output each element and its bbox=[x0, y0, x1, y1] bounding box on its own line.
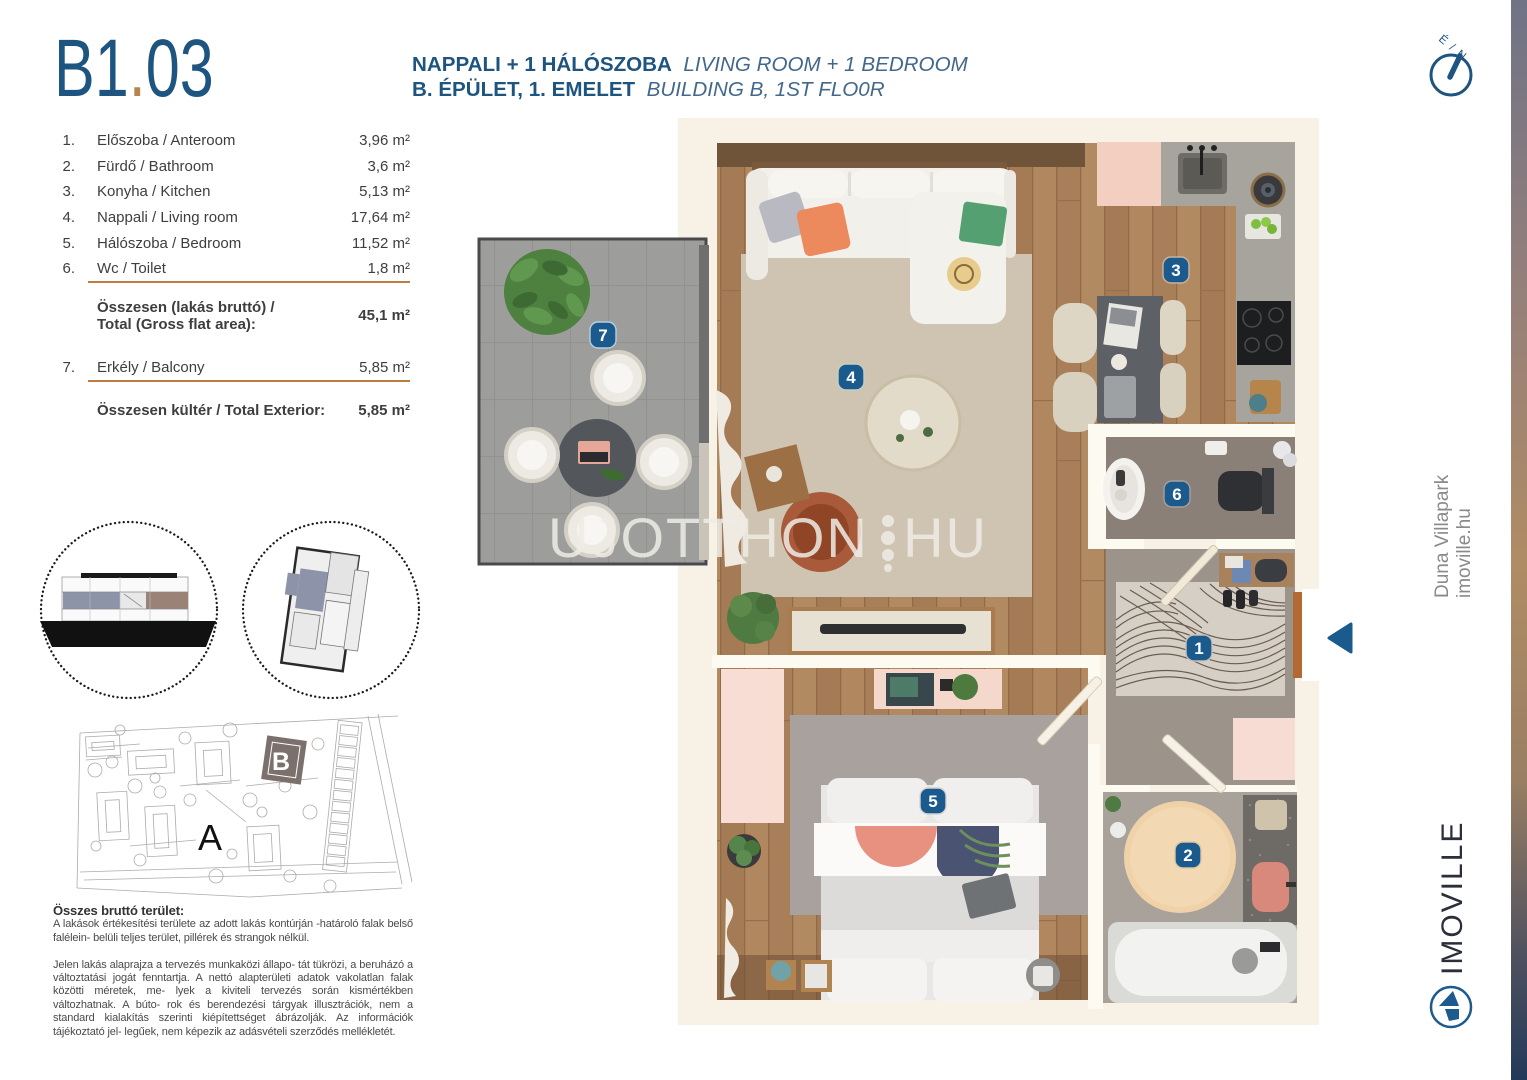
svg-text:B: B bbox=[272, 748, 290, 776]
svg-text:7: 7 bbox=[598, 326, 607, 345]
svg-text:4: 4 bbox=[846, 368, 856, 387]
svg-text:UJOTTHON: UJOTTHON bbox=[548, 506, 869, 569]
svg-text:Duna Villapark: Duna Villapark bbox=[1432, 474, 1453, 598]
svg-text:A: A bbox=[198, 817, 222, 858]
svg-text:HU: HU bbox=[903, 506, 988, 569]
svg-text:imoville.hu: imoville.hu bbox=[1454, 508, 1475, 598]
svg-text:5: 5 bbox=[928, 792, 937, 811]
svg-text:1: 1 bbox=[1194, 639, 1203, 658]
svg-text:6: 6 bbox=[1172, 485, 1181, 504]
svg-text:3: 3 bbox=[1171, 261, 1180, 280]
svg-text:2: 2 bbox=[1183, 846, 1192, 865]
svg-text:IMOVILLE: IMOVILLE bbox=[1436, 821, 1469, 975]
